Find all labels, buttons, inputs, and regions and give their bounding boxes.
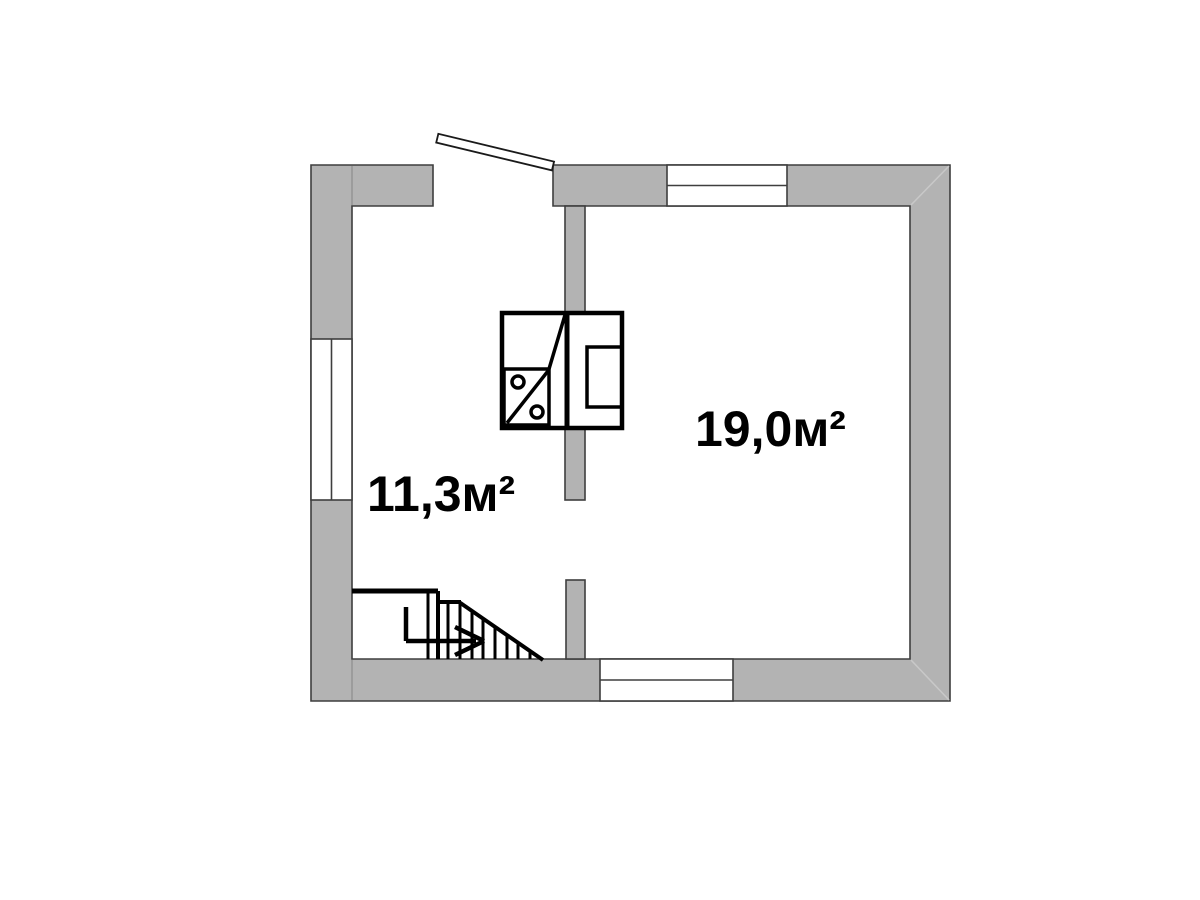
sink-drain-icon <box>531 406 543 418</box>
floor-plan-drawing: 11,3м² 19,0м² <box>0 0 1200 900</box>
staircase <box>352 591 543 660</box>
partition-wall-stub <box>566 580 585 659</box>
top-wall-window <box>667 165 787 206</box>
room-area-label-left: 11,3м² <box>367 466 515 522</box>
left-wall-window <box>311 339 352 500</box>
entry-door <box>436 134 554 171</box>
kitchen-unit <box>502 313 622 428</box>
room-area-label-right: 19,0м² <box>695 401 846 457</box>
open-door-leaf <box>436 134 554 171</box>
bottom-wall-window <box>600 659 733 701</box>
sink-drain-icon <box>512 376 524 388</box>
floor-plan-canvas: 11,3м² 19,0м² <box>0 0 1200 900</box>
